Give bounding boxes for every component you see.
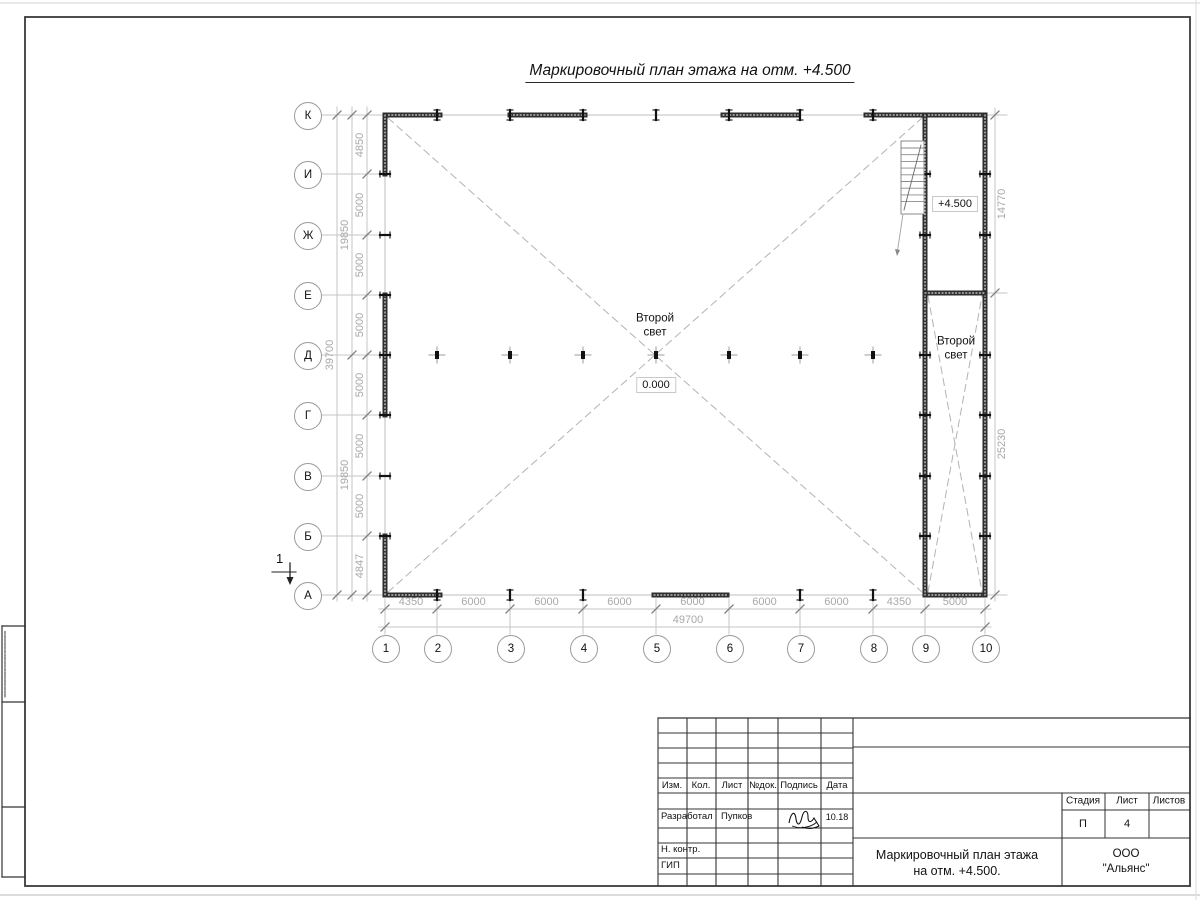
dim-bottom-segment: 6000 bbox=[607, 596, 631, 608]
dim-right-bottom: 25230 bbox=[996, 429, 1008, 460]
drawing-title: Маркировочный план этажа на отм. +4.500 bbox=[525, 62, 854, 83]
level-mark-plus-4500: +4.500 bbox=[932, 196, 978, 212]
titleblock-n-contr-label: Н. контр. bbox=[661, 844, 700, 855]
dim-left-segment: 5000 bbox=[354, 192, 366, 216]
dim-bottom-segment: 4350 bbox=[887, 596, 911, 608]
row-axis-bubble: Б bbox=[294, 523, 322, 551]
drawing-sheet: Маркировочный план этажа на отм. +4.500 … bbox=[0, 0, 1200, 900]
section-mark-label: 1 bbox=[276, 551, 283, 566]
titleblock-stage-col: Лист bbox=[1116, 795, 1138, 808]
titleblock-header-col: Кол. bbox=[692, 780, 711, 792]
titleblock-stage-value: П bbox=[1079, 817, 1087, 831]
col-axis-bubble: 3 bbox=[497, 635, 525, 663]
titleblock-gip-label: ГИП bbox=[661, 860, 680, 871]
dim-left-segment: 5000 bbox=[354, 313, 366, 337]
row-axis-bubble: А bbox=[294, 582, 322, 610]
plan-drawing bbox=[0, 0, 1200, 900]
dim-left-total: 39700 bbox=[324, 340, 336, 371]
titleblock-organization: ООО "Альянс" bbox=[1089, 847, 1163, 877]
titleblock-doc-title: Маркировочный план этажа на отм. +4.500. bbox=[876, 847, 1038, 880]
dim-bottom-segment: 5000 bbox=[943, 596, 967, 608]
titleblock-date: 10.18 bbox=[826, 812, 849, 824]
col-axis-bubble: 2 bbox=[424, 635, 452, 663]
col-axis-bubble: 7 bbox=[787, 635, 815, 663]
row-axis-bubble: Е bbox=[294, 282, 322, 310]
second-light-label-main: Второй свет bbox=[636, 312, 674, 341]
titleblock-stage-col: Стадия bbox=[1066, 795, 1100, 808]
titleblock-stage-col: Листов bbox=[1153, 795, 1186, 808]
titleblock-header-col: Изм. bbox=[662, 780, 682, 792]
dim-bottom-segment: 6000 bbox=[534, 596, 558, 608]
titleblock-header-col: Дата bbox=[826, 780, 847, 792]
dim-left-segment: 4847 bbox=[354, 553, 366, 577]
dim-bottom-segment: 6000 bbox=[680, 596, 704, 608]
dim-bottom-segment: 6000 bbox=[752, 596, 776, 608]
dim-left-segment: 5000 bbox=[354, 494, 366, 518]
titleblock-header-col: Подпись bbox=[780, 780, 818, 792]
titleblock-sheet-value: 4 bbox=[1124, 817, 1130, 831]
col-axis-bubble: 5 bbox=[643, 635, 671, 663]
dim-left-segment: 4850 bbox=[354, 132, 366, 156]
dim-left-segment: 5000 bbox=[354, 433, 366, 457]
titleblock-header-col: Лист bbox=[722, 780, 743, 792]
col-axis-bubble: 8 bbox=[860, 635, 888, 663]
col-axis-bubble: 9 bbox=[912, 635, 940, 663]
level-mark-zero: 0.000 bbox=[636, 377, 676, 393]
dim-bottom-total: 49700 bbox=[673, 614, 704, 626]
row-axis-bubble: И bbox=[294, 161, 322, 189]
col-axis-bubble: 4 bbox=[570, 635, 598, 663]
col-axis-bubble: 6 bbox=[716, 635, 744, 663]
dim-left-segment: 5000 bbox=[354, 373, 366, 397]
col-axis-bubble: 1 bbox=[372, 635, 400, 663]
row-axis-bubble: В bbox=[294, 463, 322, 491]
col-axis-bubble: 10 bbox=[972, 635, 1000, 663]
titleblock-header-col: №док. bbox=[749, 780, 777, 792]
row-axis-bubble: Ж bbox=[294, 222, 322, 250]
dim-right-top: 14770 bbox=[996, 189, 1008, 220]
second-light-label-right: Второй свет bbox=[937, 335, 975, 364]
dim-bottom-segment: 6000 bbox=[824, 596, 848, 608]
dim-left-segment: 5000 bbox=[354, 253, 366, 277]
dim-left-group: 19850 bbox=[339, 220, 351, 251]
row-axis-bubble: Г bbox=[294, 402, 322, 430]
row-axis-bubble: Д bbox=[294, 342, 322, 370]
titleblock-developed-by-name: Пупков bbox=[721, 811, 752, 822]
dim-left-group: 19850 bbox=[339, 460, 351, 491]
titleblock-developed-by-label: Разработал bbox=[661, 811, 713, 822]
dim-bottom-segment: 6000 bbox=[461, 596, 485, 608]
row-axis-bubble: К bbox=[294, 102, 322, 130]
dim-bottom-segment: 4350 bbox=[399, 596, 423, 608]
